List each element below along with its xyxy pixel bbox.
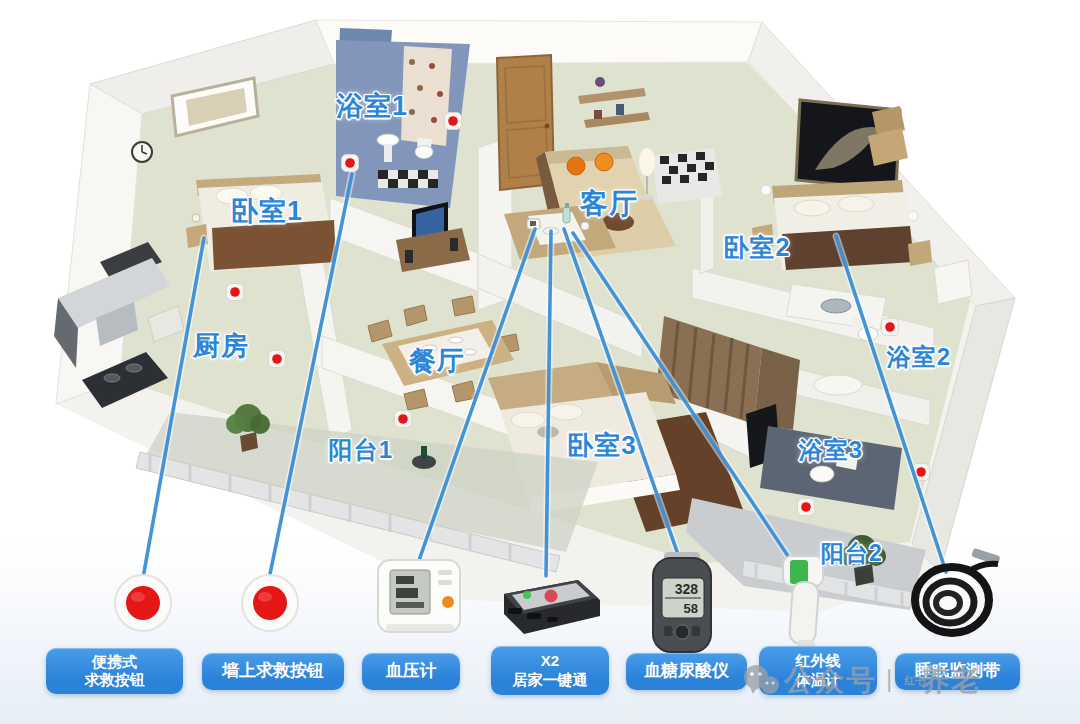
device-label-text: 居家一键通	[513, 671, 588, 689]
device-label-blood-pressure-monitor: 血压计	[362, 653, 460, 690]
device-label-home-one-key-terminal: X2 居家一键通	[491, 646, 609, 695]
device-label-text: 墙上求救按钮	[222, 661, 324, 682]
device-label-text: X2	[541, 652, 559, 670]
device-label-text: 血压计	[386, 661, 437, 682]
device-label-portable-sos-button: 便携式 求救按钮	[46, 648, 183, 694]
device-label-text: 红外线	[796, 652, 841, 670]
device-label-sleep-monitor-band: 睡眠监测带	[895, 653, 1020, 690]
device-label-glucose-uric-acid-meter: 血糖尿酸仪	[626, 653, 747, 690]
device-label-wall-sos-button: 墙上求救按钮	[202, 653, 344, 690]
device-label-text: 求救按钮	[85, 671, 145, 689]
device-label-text: 便携式	[92, 653, 137, 671]
infographic-image: 328 58 浴室1卧室1客厅卧室2厨房餐厅浴室2阳台1卧室3浴室3阳台2 便携…	[0, 0, 1080, 724]
device-label-text: 体温计	[796, 671, 841, 689]
device-labels-row: 便携式 求救按钮 墙上求救按钮 血压计 X2 居家一键通 血糖尿酸仪 红外线 体…	[0, 0, 1080, 724]
device-label-text: 血糖尿酸仪	[644, 661, 729, 682]
device-label-text: 睡眠监测带	[915, 661, 1000, 682]
device-label-infrared-thermometer: 红外线 体温计	[759, 646, 877, 695]
